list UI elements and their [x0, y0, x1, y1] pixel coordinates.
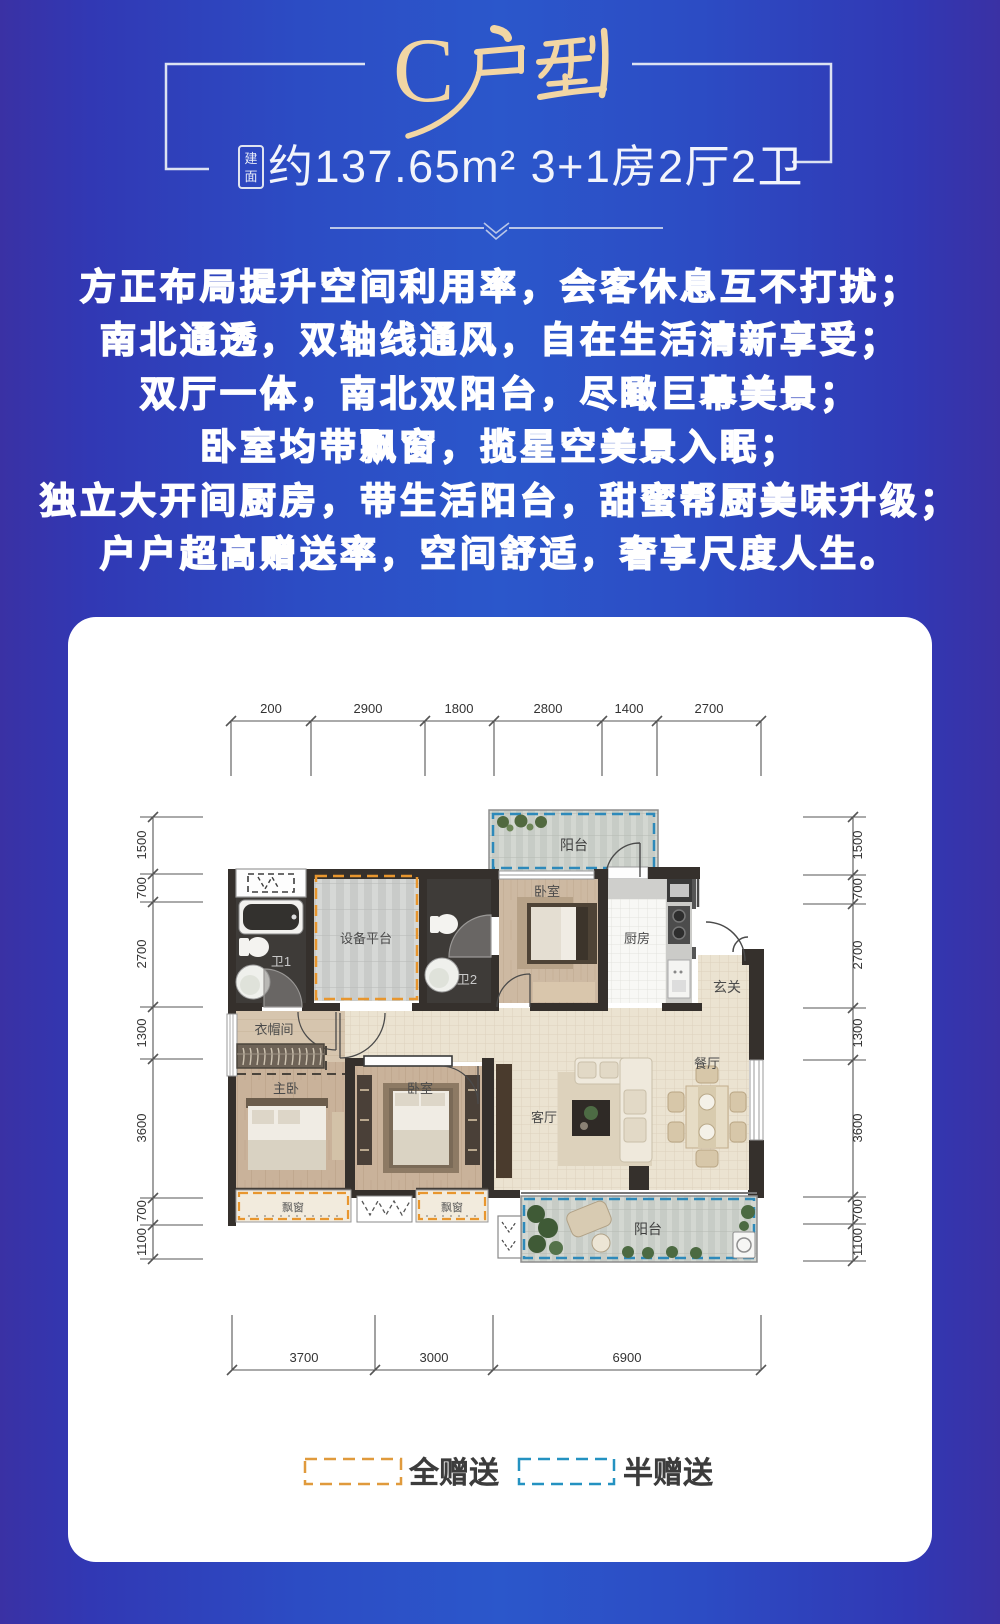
svg-text:2700: 2700: [850, 941, 865, 970]
svg-text:1100: 1100: [134, 1228, 149, 1256]
svg-text:客厅: 客厅: [531, 1110, 557, 1125]
svg-text:700: 700: [134, 1200, 149, 1222]
svg-text:设备平台: 设备平台: [340, 931, 392, 946]
svg-text:3600: 3600: [850, 1114, 865, 1143]
svg-text:700: 700: [850, 1199, 865, 1221]
svg-text:C: C: [393, 19, 454, 121]
svg-text:全赠送: 全赠送: [409, 1457, 499, 1490]
svg-text:建: 建: [244, 151, 257, 166]
svg-text:2700: 2700: [134, 940, 149, 969]
svg-text:2700: 2700: [695, 701, 724, 716]
svg-text:面: 面: [244, 169, 257, 184]
svg-text:3000: 3000: [420, 1350, 449, 1365]
svg-text:1300: 1300: [850, 1019, 865, 1048]
svg-text:1100: 1100: [850, 1228, 865, 1256]
svg-text:1500: 1500: [850, 831, 865, 860]
svg-text:2800: 2800: [534, 701, 563, 716]
svg-text:飘窗: 飘窗: [282, 1200, 304, 1214]
svg-text:6900: 6900: [613, 1350, 642, 1365]
svg-text:3700: 3700: [290, 1350, 319, 1365]
svg-text:1400: 1400: [615, 701, 644, 716]
svg-text:3600: 3600: [134, 1114, 149, 1143]
svg-text:2900: 2900: [354, 701, 383, 716]
svg-text:餐厅: 餐厅: [694, 1056, 720, 1071]
svg-text:1800: 1800: [445, 701, 474, 716]
svg-text:卧室: 卧室: [407, 1081, 433, 1096]
svg-text:飘窗: 飘窗: [441, 1200, 463, 1214]
svg-text:衣帽间: 衣帽间: [254, 1022, 293, 1037]
svg-text:卫1: 卫1: [271, 954, 291, 969]
svg-text:阳台: 阳台: [634, 1221, 662, 1237]
svg-text:卫2: 卫2: [457, 972, 477, 987]
svg-text:主卧: 主卧: [273, 1081, 299, 1096]
svg-text:1300: 1300: [134, 1019, 149, 1048]
svg-text:半赠送: 半赠送: [623, 1457, 713, 1490]
svg-text:700: 700: [850, 878, 865, 900]
svg-text:厨房: 厨房: [624, 931, 650, 946]
svg-text:约137.65m² 3+1房2厅2卫: 约137.65m² 3+1房2厅2卫: [268, 141, 804, 192]
svg-text:1500: 1500: [134, 831, 149, 860]
svg-text:700: 700: [134, 877, 149, 899]
svg-text:阳台: 阳台: [560, 837, 588, 853]
svg-text:玄关: 玄关: [713, 979, 741, 995]
svg-text:卧室: 卧室: [534, 884, 560, 899]
svg-text:200: 200: [260, 701, 282, 716]
